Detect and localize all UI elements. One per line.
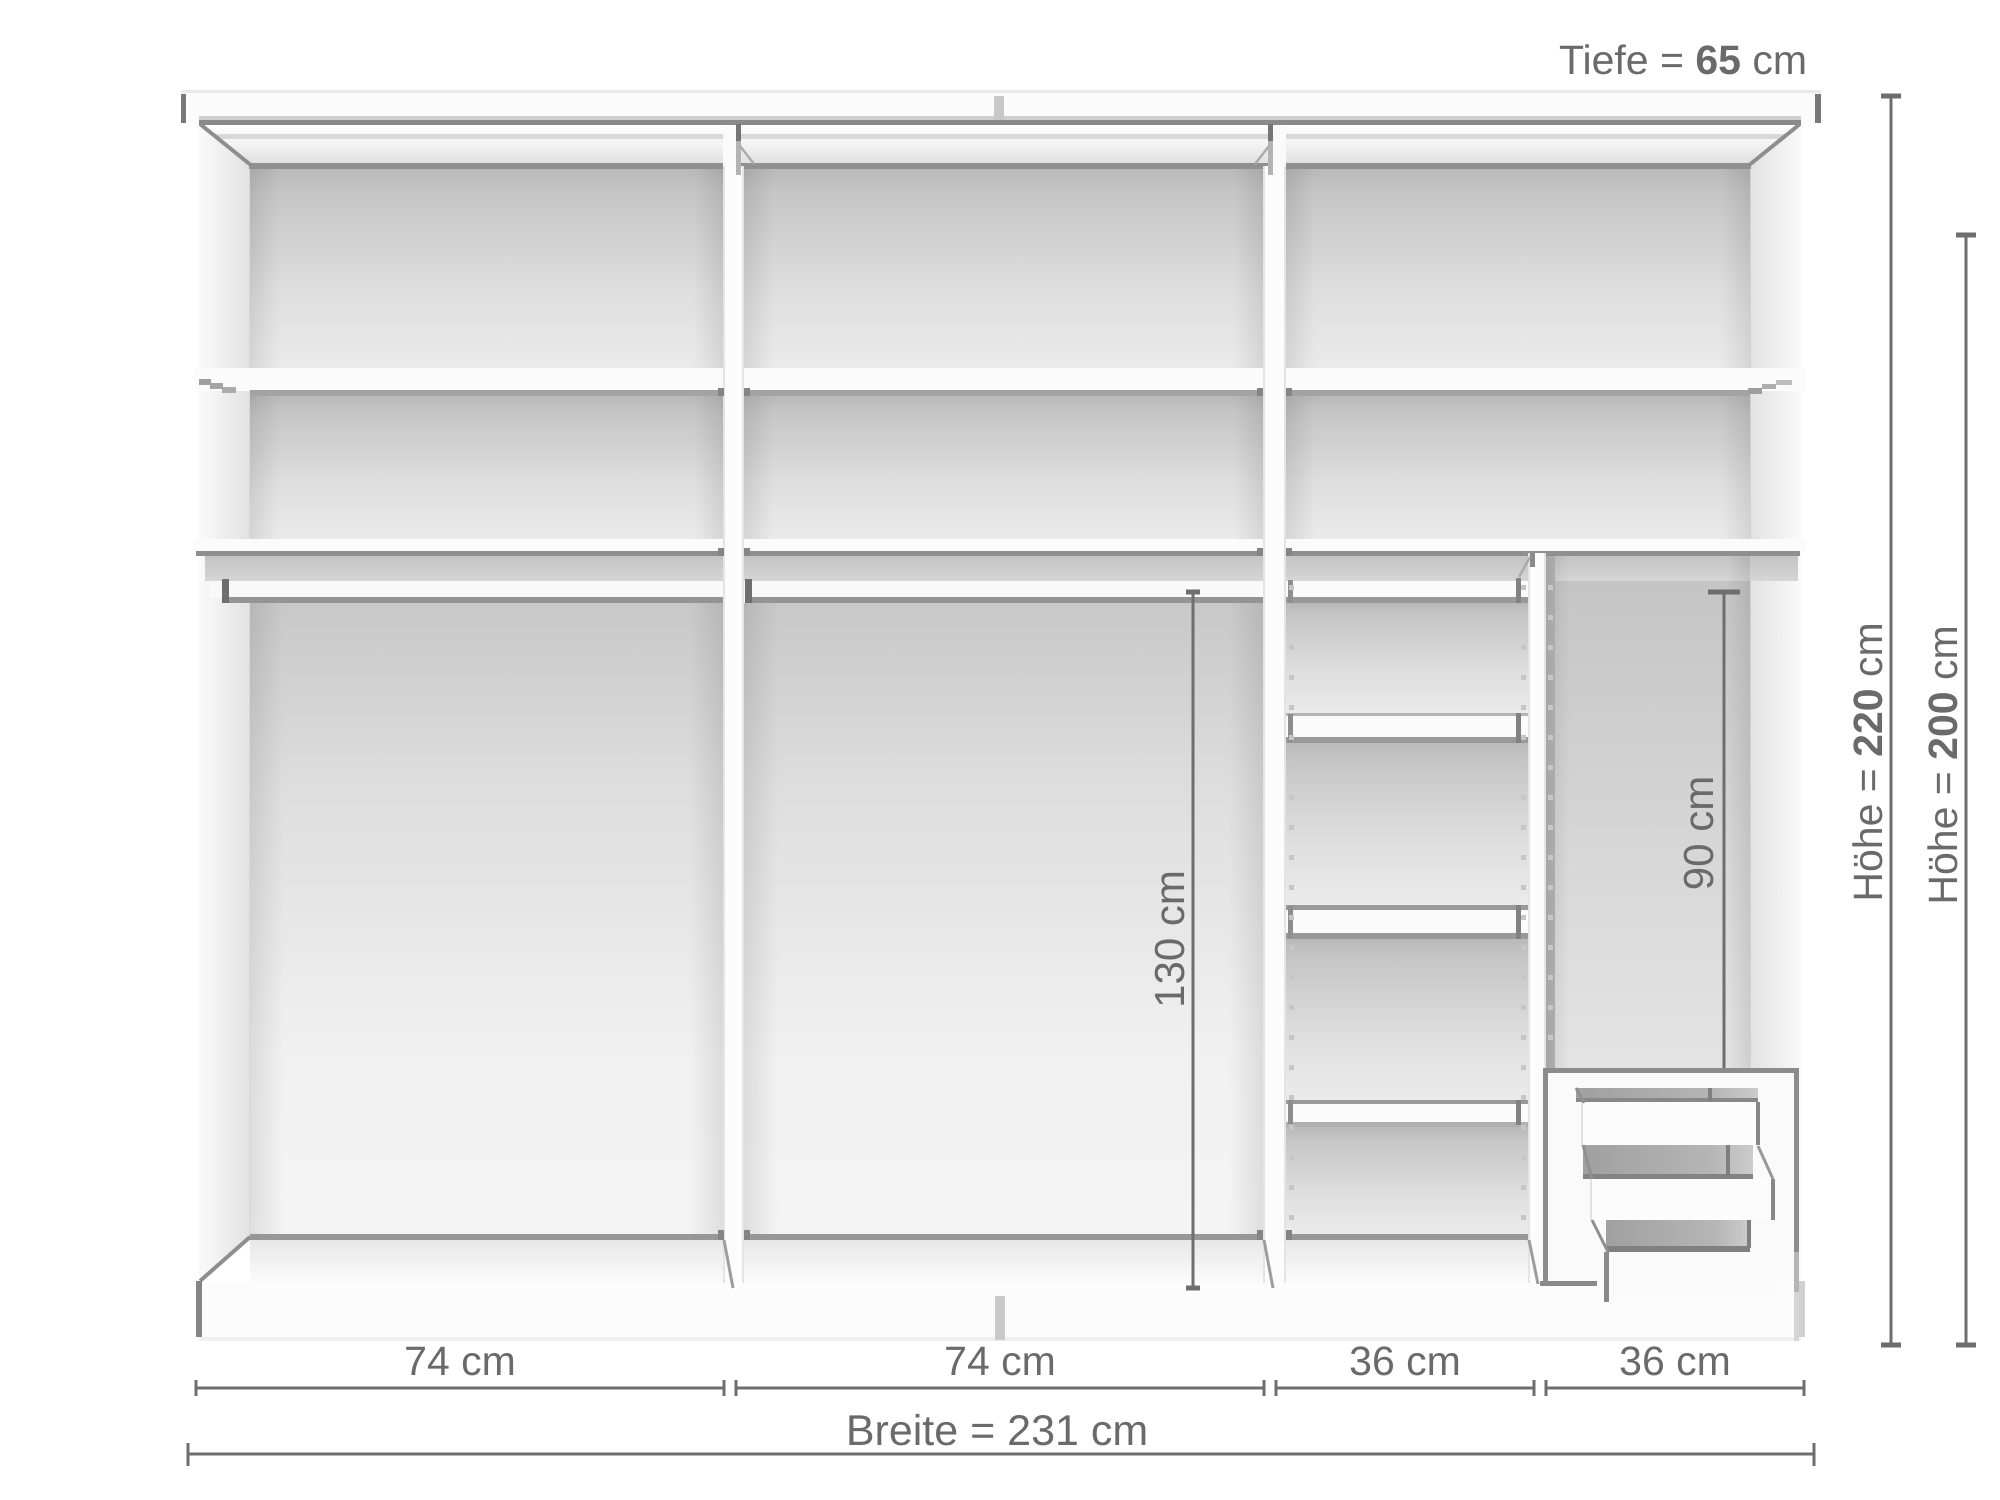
svg-text:36 cm: 36 cm (1619, 1338, 1731, 1384)
svg-text:36 cm: 36 cm (1349, 1338, 1461, 1384)
svg-text:Höhe = 200 cm: Höhe = 200 cm (1920, 625, 1966, 904)
svg-text:130 cm: 130 cm (1146, 870, 1193, 1008)
svg-text:74 cm: 74 cm (944, 1338, 1056, 1384)
svg-text:74 cm: 74 cm (404, 1338, 516, 1384)
svg-text:Höhe = 220 cm: Höhe = 220 cm (1845, 622, 1891, 901)
svg-text:90 cm: 90 cm (1675, 776, 1722, 890)
svg-text:Breite = 231 cm: Breite = 231 cm (846, 1407, 1148, 1455)
svg-text:Tiefe = 65 cm: Tiefe = 65 cm (1559, 37, 1807, 83)
